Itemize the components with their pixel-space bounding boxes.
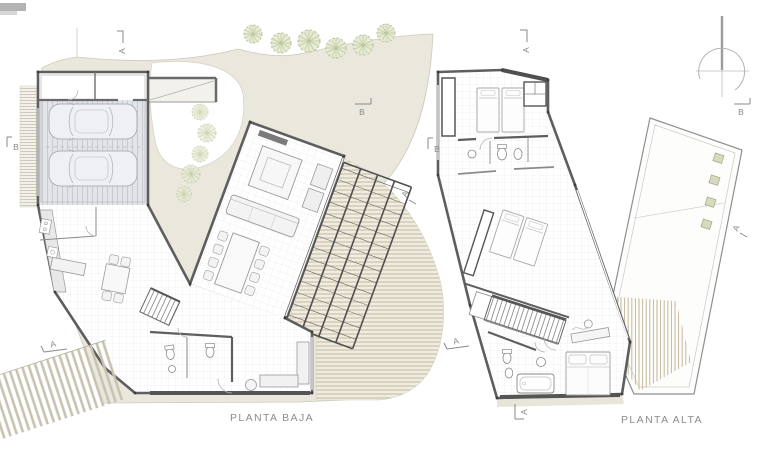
bush-icon [192,104,208,120]
chair [101,291,112,302]
sink [468,150,476,158]
car-icon [49,150,137,188]
plan-title-planta-alta: PLANTA ALTA [621,414,703,426]
sofa [297,342,309,384]
section-letter: B [359,107,365,117]
plan-title-planta-baja: PLANTA BAJA [230,412,314,424]
tree-icon [244,25,262,43]
storage-rooms-floor [38,72,148,102]
kitchen-sink [47,246,59,258]
bed [477,88,499,132]
breakfast-table [101,264,130,294]
bidet [505,368,513,378]
chair [120,257,131,268]
toilet [206,347,214,358]
plan-canvas: A A B B A A A A [0,0,760,450]
bush-icon [198,124,216,142]
bush-icon [192,146,208,162]
bush-icon [182,165,200,183]
toilet [503,353,511,364]
tree-icon [298,30,320,52]
section-letter: A [519,409,529,415]
section-letter: A [521,47,531,53]
tree-icon [271,33,291,53]
bidet [514,149,522,160]
chair [113,293,124,304]
section-letter: A [117,48,127,54]
floor-plan-drawing: A A B B A A A A [0,0,760,450]
tree-icon [326,38,346,58]
sink [537,358,546,367]
car-icon [49,103,137,141]
chair [109,254,120,265]
ramp-hatch [20,86,37,207]
side-table [246,380,257,391]
bush-icon [177,187,192,202]
closet [442,78,455,136]
bed [502,88,524,132]
sofa [260,375,298,387]
sink [169,366,176,373]
entry-canopy [148,78,216,102]
bath-wall [458,139,476,140]
tree-icon [377,24,395,42]
section-letter: B [434,144,440,154]
stove [39,219,51,235]
tree-icon [353,35,373,55]
section-letter: B [13,142,19,152]
section-letter: B [738,107,744,117]
toilet [498,148,507,160]
